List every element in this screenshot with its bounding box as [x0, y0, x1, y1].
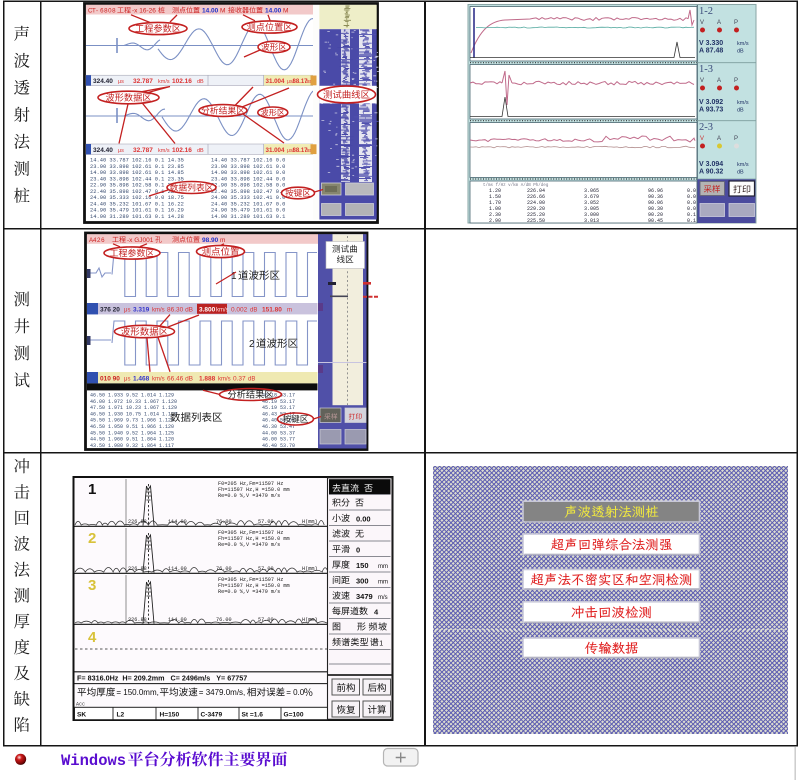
svg-text:0: 0	[356, 545, 360, 554]
svg-text:226.88: 226.88	[128, 617, 147, 623]
svg-text:km/s: km/s	[152, 307, 165, 313]
svg-text:2: 2	[88, 530, 96, 547]
svg-text:14.90 31.289 101.63 0.1 14: 14.90 31.289 101.63 0.1 14.28	[90, 214, 184, 220]
svg-text:98.90: 98.90	[202, 237, 219, 244]
svg-text:V 3.330: V 3.330	[699, 40, 723, 47]
svg-text:= 0.0: = 0.0	[286, 688, 305, 697]
svg-text:8: 8	[112, 7, 116, 14]
svg-text:6: 6	[101, 237, 105, 244]
svg-text:22.90 35.898 102.58 0.0: 22.90 35.898 102.58 0.0	[211, 183, 285, 189]
svg-text:376 20: 376 20	[100, 306, 120, 313]
svg-text:km/s: km/s	[737, 100, 749, 106]
svg-text:0.37: 0.37	[233, 375, 246, 382]
svg-text:H=150: H=150	[160, 711, 180, 718]
svg-text:μs: μs	[124, 376, 130, 382]
svg-text:G=100: G=100	[284, 711, 304, 718]
svg-text:44.50 1.960 9.51 1.864: 44.50 1.960 9.51 1.864 1.120	[90, 437, 174, 443]
svg-text:3479: 3479	[356, 592, 373, 601]
svg-text:m: m	[287, 307, 292, 313]
svg-text:1.888: 1.888	[199, 375, 216, 382]
svg-text:0.00: 0.00	[356, 514, 371, 523]
svg-text:P: P	[734, 78, 738, 84]
svg-text:24.90 35.479 101.61 0.0: 24.90 35.479 101.61 0.0	[211, 208, 285, 214]
svg-text:46.50 1.933 9.52 1.014: 46.50 1.933 9.52 1.014 1.129	[90, 393, 174, 399]
svg-text:225.50: 225.50	[527, 218, 545, 224]
svg-text:km/s: km/s	[216, 307, 229, 313]
svg-text:14.00: 14.00	[202, 7, 219, 14]
svg-text:dB: dB	[197, 79, 204, 85]
svg-text:32.787: 32.787	[133, 147, 153, 154]
svg-text:114.00: 114.00	[168, 519, 187, 525]
svg-text:M: M	[283, 7, 288, 14]
svg-text:A: A	[717, 136, 721, 142]
svg-text:F= 8316.0Hz H= 209.2mm C= 2: F= 8316.0Hz H= 209.2mm C= 2496m/s Y= 677…	[77, 674, 247, 683]
svg-text:114.00: 114.00	[168, 566, 187, 572]
svg-text:1-2: 1-2	[699, 6, 713, 17]
svg-text:23.90 33.898 102.61 0.1 23: 23.90 33.898 102.61 0.1 23.85	[90, 164, 184, 170]
svg-text:V 3.094: V 3.094	[699, 161, 723, 168]
svg-text:31.004: 31.004	[266, 147, 285, 154]
svg-text:32.787: 32.787	[133, 78, 153, 85]
svg-text:= 3479.0m/s,: = 3479.0m/s,	[199, 688, 245, 697]
svg-text:km/s: km/s	[158, 79, 170, 85]
svg-text:Re=0.0 %,V =3479 m/s: Re=0.0 %,V =3479 m/s	[218, 542, 280, 548]
svg-text:km/s: km/s	[218, 376, 231, 382]
svg-text:Re=0.0 %,V =3479 m/s: Re=0.0 %,V =3479 m/s	[218, 589, 280, 595]
svg-text:226.88: 226.88	[128, 519, 147, 525]
svg-text:14.90 33.898 102.61 0.1 14: 14.90 33.898 102.61 0.1 14.85	[90, 170, 184, 176]
svg-text:= 150.0mm,: = 150.0mm,	[116, 688, 158, 697]
svg-text:23.40 33.898 102.44 0.1 23: 23.40 33.898 102.44 0.1 23.35	[90, 176, 184, 182]
svg-text:P: P	[734, 20, 738, 26]
svg-text:dB: dB	[737, 170, 744, 176]
svg-text:dB: dB	[737, 49, 744, 55]
svg-text:A: A	[717, 78, 721, 84]
svg-text:44.00 53.37: 44.00 53.37	[262, 430, 295, 436]
svg-text:114.00: 114.00	[168, 617, 187, 623]
svg-text:31.004: 31.004	[266, 78, 285, 85]
svg-text:Re=0.0 %,V =3479 m/s: Re=0.0 %,V =3479 m/s	[218, 493, 280, 499]
svg-text:46.50 1.950 9.51 1.966: 46.50 1.950 9.51 1.966 1.120	[90, 424, 174, 430]
svg-text:dB: dB	[306, 148, 312, 153]
svg-text:dB: dB	[306, 79, 312, 84]
svg-text:24.90 35.333 102.41 0.0: 24.90 35.333 102.41 0.0	[211, 195, 285, 201]
svg-text:57.00: 57.00	[258, 566, 274, 572]
svg-text:150: 150	[356, 561, 369, 570]
svg-text:86.30 dB: 86.30 dB	[167, 306, 193, 313]
svg-text:mm: mm	[378, 564, 388, 570]
svg-text:-x 16-26: -x 16-26	[132, 7, 156, 14]
svg-text:A 90.32: A 90.32	[699, 169, 723, 176]
svg-text:4: 4	[88, 629, 97, 646]
svg-text:102.16: 102.16	[172, 78, 192, 85]
svg-text:45.50 1.940 9.52 1.964: 45.50 1.940 9.52 1.964 1.125	[90, 430, 174, 436]
svg-text:14.90 31.289 101.63 0.1: 14.90 31.289 101.63 0.1	[211, 214, 285, 220]
svg-text:24.90 35.333 102.16 0.0 18: 24.90 35.333 102.16 0.0 18.75	[90, 195, 184, 201]
svg-text:57.00: 57.00	[258, 519, 274, 525]
svg-text:226.88: 226.88	[128, 566, 147, 572]
svg-text:14.40 33.787 102.16 0.1 14: 14.40 33.787 102.16 0.1 14.35	[90, 158, 184, 164]
svg-text:V: V	[700, 78, 704, 84]
svg-text:76.00: 76.00	[216, 566, 232, 572]
svg-text:M: M	[220, 7, 225, 14]
svg-text:1: 1	[88, 481, 96, 498]
svg-text:3: 3	[88, 577, 96, 594]
svg-text:-: -	[96, 7, 98, 14]
svg-text:14.00: 14.00	[265, 7, 282, 14]
svg-text:km/s: km/s	[158, 148, 170, 154]
svg-text:2: 2	[249, 339, 255, 350]
svg-text:H(mm): H(mm)	[302, 519, 318, 525]
svg-text:A: A	[717, 20, 721, 26]
svg-text:46.00 53.77: 46.00 53.77	[262, 437, 295, 443]
svg-text:76.00: 76.00	[216, 519, 232, 525]
svg-text:km/s: km/s	[737, 41, 749, 47]
svg-text:V: V	[700, 20, 704, 26]
svg-text:μs: μs	[118, 79, 124, 85]
svg-text:V 3.092: V 3.092	[699, 99, 723, 106]
svg-text:0.1: 0.1	[687, 218, 696, 224]
svg-text:24.40 35.232 101.67 0.1 16: 24.40 35.232 101.67 0.1 16.22	[90, 201, 184, 207]
svg-text:1: 1	[379, 640, 383, 647]
svg-text:14.90 33.898 102.61 0.0: 14.90 33.898 102.61 0.0	[211, 170, 285, 176]
svg-text:66.46 dB: 66.46 dB	[167, 375, 193, 382]
svg-text:90.45: 90.45	[648, 218, 663, 224]
svg-text:1.468: 1.468	[133, 375, 150, 382]
svg-text:324.40: 324.40	[93, 78, 113, 85]
svg-text:22.40 35.898 102.47 0.0: 22.40 35.898 102.47 0.0	[211, 189, 285, 195]
svg-text:102.16: 102.16	[172, 147, 192, 154]
svg-text:57.00: 57.00	[258, 617, 274, 623]
svg-text:Acc: Acc	[76, 702, 85, 708]
svg-text:45.19 53.17: 45.19 53.17	[262, 405, 295, 411]
svg-text:SK: SK	[77, 711, 86, 718]
svg-text:-x GJ001: -x GJ001	[127, 237, 154, 244]
svg-text:km/s: km/s	[737, 162, 749, 168]
svg-text:m: m	[220, 237, 225, 244]
svg-text:dB: dB	[737, 108, 744, 114]
svg-text:μs: μs	[118, 148, 124, 154]
svg-text:St =1.6: St =1.6	[242, 711, 264, 718]
svg-text:1-3: 1-3	[699, 64, 713, 75]
svg-text:L2: L2	[117, 711, 125, 718]
svg-text:dB: dB	[250, 307, 257, 313]
svg-text:P: P	[734, 136, 738, 142]
svg-text:45.50 1.969 9.73 1.966: 45.50 1.969 9.73 1.966 1.128	[90, 418, 174, 424]
svg-text:A 87.48: A 87.48	[699, 48, 723, 55]
svg-text:151.80: 151.80	[262, 306, 282, 313]
svg-text:Windows: Windows	[61, 752, 126, 770]
svg-text:14.40 33.787 102.16 0.0: 14.40 33.787 102.16 0.0	[211, 158, 285, 164]
svg-text:010 90: 010 90	[100, 375, 120, 382]
svg-text:3.013: 3.013	[584, 218, 599, 224]
svg-text:km/s: km/s	[152, 376, 165, 382]
svg-text:2.90: 2.90	[489, 218, 501, 224]
svg-text:H(mm): H(mm)	[302, 617, 318, 623]
svg-text:324.40: 324.40	[93, 147, 113, 154]
svg-text:300: 300	[356, 576, 369, 585]
svg-text:24.90 35.479 101.61 0.1 16: 24.90 35.479 101.61 0.1 16.29	[90, 208, 184, 214]
svg-text:dB: dB	[248, 376, 255, 382]
svg-text:3.800: 3.800	[199, 306, 216, 313]
svg-text:3.319: 3.319	[133, 306, 150, 313]
svg-text:23.90 33.898 102.61 0.0: 23.90 33.898 102.61 0.0	[211, 164, 285, 170]
svg-text:mm: mm	[378, 579, 388, 585]
svg-text:m/s: m/s	[378, 595, 388, 601]
svg-text:47.50 1.971 10.23 1.067: 47.50 1.971 10.23 1.067 1.129	[90, 405, 177, 411]
svg-text:H(mm): H(mm)	[302, 566, 318, 572]
svg-text:46.40 53.70: 46.40 53.70	[262, 443, 295, 449]
svg-text:24.40 35.232 101.67 0.0: 24.40 35.232 101.67 0.0	[211, 201, 285, 207]
svg-text:46.50 1.930 10.75 1.014: 46.50 1.930 10.75 1.014 1.127	[90, 411, 177, 417]
svg-text:V: V	[700, 136, 704, 142]
svg-text:dB: dB	[197, 148, 204, 154]
svg-text:μs: μs	[124, 307, 130, 313]
svg-text:2-3: 2-3	[699, 122, 713, 133]
svg-text:43.50 1.980 9.32 1.864: 43.50 1.980 9.32 1.864 1.117	[90, 443, 174, 449]
svg-text:76.00: 76.00	[216, 617, 232, 623]
svg-text:0.002: 0.002	[231, 306, 248, 313]
svg-text:23.40 33.898 102.44 0.0: 23.40 33.898 102.44 0.0	[211, 176, 285, 182]
svg-text:46.00 1.972 10.33 1.067: 46.00 1.972 10.33 1.067 1.120	[90, 399, 177, 405]
svg-text:A 93.73: A 93.73	[699, 107, 723, 114]
svg-text:C-3479: C-3479	[201, 711, 223, 718]
